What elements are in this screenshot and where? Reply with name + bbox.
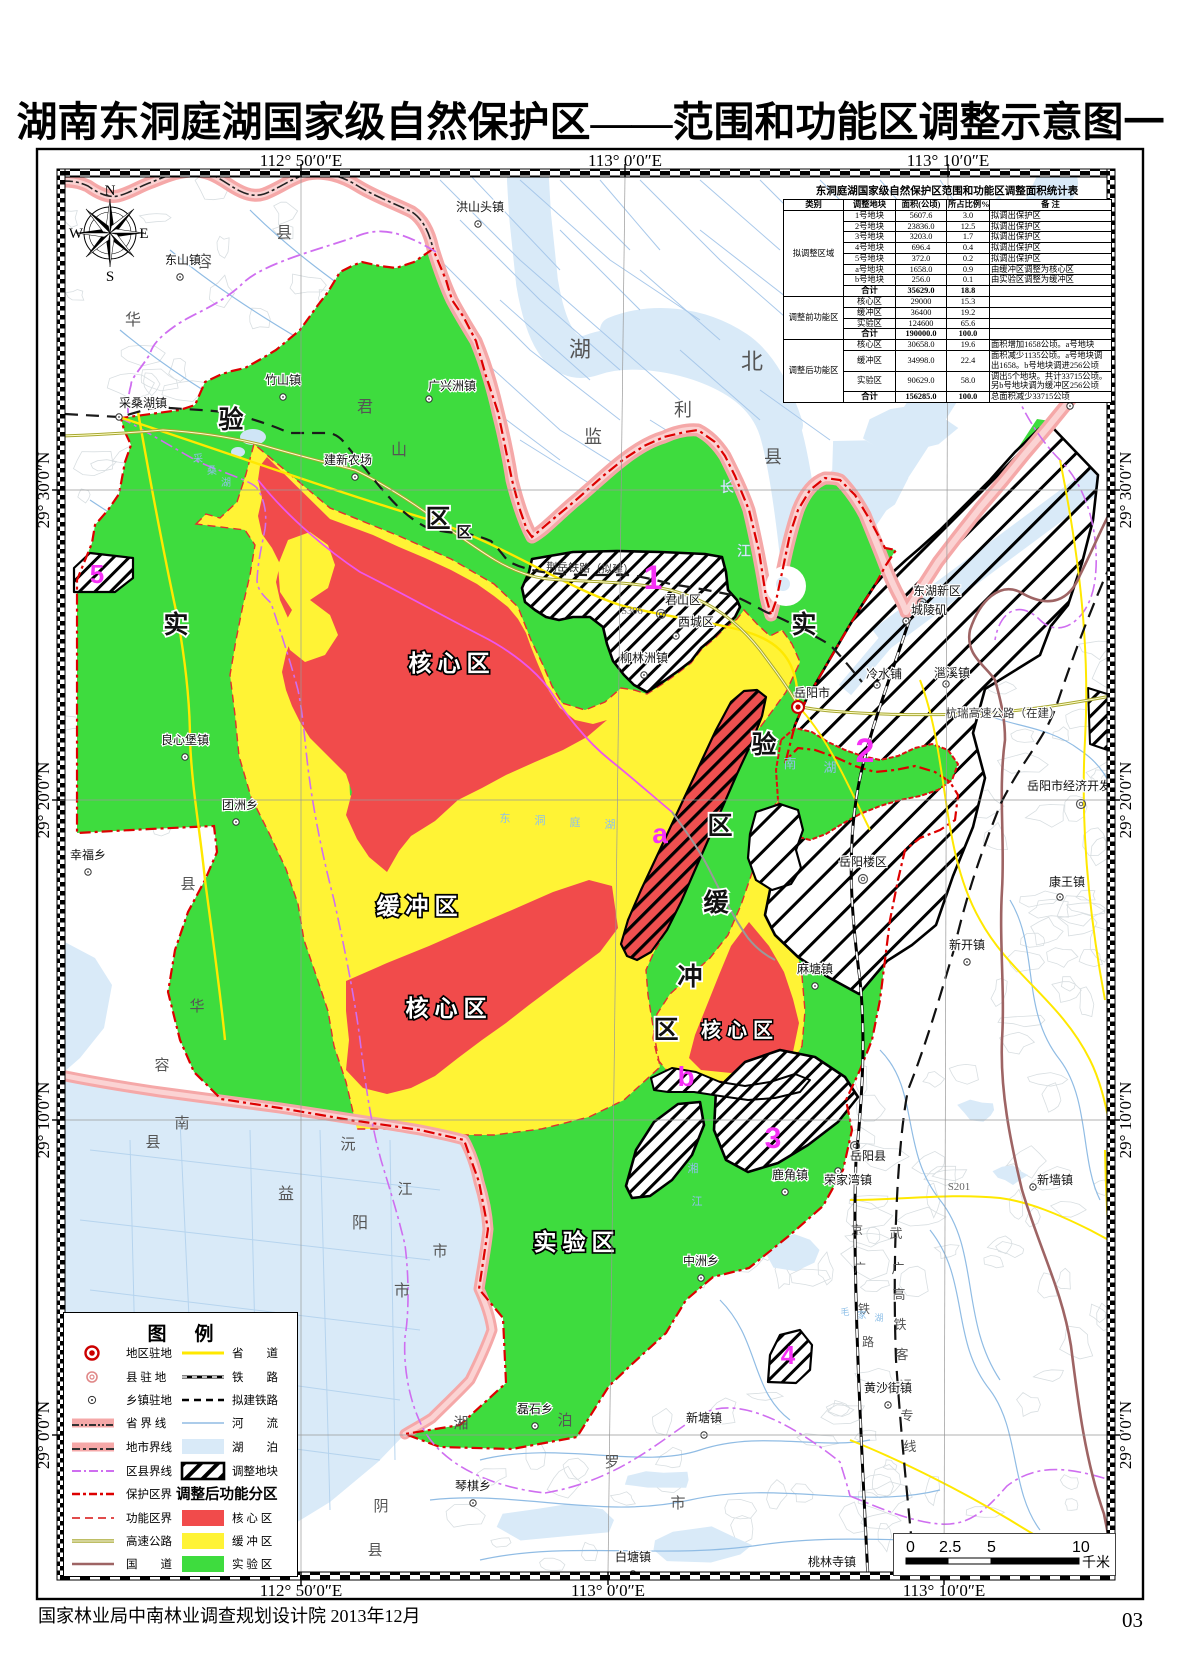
svg-text:省 道: 省 道	[232, 1346, 278, 1360]
svg-text:荣家湾镇: 荣家湾镇	[824, 1172, 872, 1187]
svg-text:君山区: 君山区	[665, 593, 701, 607]
svg-text:3: 3	[765, 1122, 782, 1155]
svg-text:保护区界: 保护区界	[126, 1487, 172, 1501]
svg-text:2.5: 2.5	[939, 1539, 961, 1556]
svg-text:铁: 铁	[893, 1317, 906, 1332]
svg-text:西城区: 西城区	[678, 615, 714, 629]
svg-text:岳阳楼区: 岳阳楼区	[839, 854, 887, 869]
svg-text:广: 广	[854, 1261, 866, 1275]
svg-text:华: 华	[189, 998, 204, 1015]
svg-text:柳林洲镇: 柳林洲镇	[620, 651, 668, 665]
svg-text:29° 30′0″N: 29° 30′0″N	[1116, 452, 1135, 529]
svg-text:市: 市	[670, 1495, 685, 1512]
svg-text:调整地块: 调整地块	[232, 1464, 278, 1478]
svg-text:实: 实	[791, 610, 816, 639]
svg-text:京: 京	[851, 1223, 863, 1237]
svg-text:白塘镇: 白塘镇	[615, 1549, 651, 1564]
svg-text:泊: 泊	[557, 1412, 572, 1429]
svg-text:湘: 湘	[453, 1415, 468, 1432]
svg-text:采桑湖镇: 采桑湖镇	[119, 395, 167, 410]
svg-text:利: 利	[674, 400, 692, 420]
svg-text:县: 县	[764, 447, 782, 467]
svg-text:市: 市	[394, 1282, 410, 1300]
svg-text:桑: 桑	[207, 465, 217, 477]
svg-text:29° 30′0″N: 29° 30′0″N	[34, 452, 53, 529]
svg-text:监: 监	[584, 427, 602, 447]
svg-text:河 流: 河 流	[232, 1416, 278, 1430]
svg-text:核心区: 核心区	[701, 1018, 779, 1042]
svg-text:实 验 区: 实 验 区	[232, 1557, 272, 1571]
svg-text:湘: 湘	[688, 1161, 699, 1175]
svg-text:铁 路: 铁 路	[232, 1370, 278, 1384]
svg-text:区: 区	[456, 524, 471, 541]
svg-text:阳: 阳	[352, 1214, 368, 1232]
svg-text:29° 0′0″N: 29° 0′0″N	[1116, 1401, 1135, 1469]
svg-text:实验区: 实验区	[534, 1229, 621, 1255]
svg-text:W: W	[69, 226, 84, 242]
svg-text:沅: 沅	[340, 1136, 355, 1153]
svg-text:113° 10′0″E: 113° 10′0″E	[907, 151, 990, 170]
svg-text:㴩溪镇: 㴩溪镇	[934, 666, 970, 680]
svg-text:湖: 湖	[569, 337, 591, 362]
svg-text:5: 5	[90, 559, 104, 589]
svg-text:S: S	[106, 269, 114, 285]
svg-text:麻塘镇: 麻塘镇	[797, 961, 833, 976]
svg-text:113° 0′0″E: 113° 0′0″E	[588, 151, 662, 170]
svg-text:广: 广	[891, 1261, 904, 1276]
svg-text:113° 10′0″E: 113° 10′0″E	[903, 1581, 986, 1600]
svg-text:广兴洲镇: 广兴洲镇	[428, 379, 476, 393]
svg-text:核 心 区: 核 心 区	[232, 1511, 272, 1525]
svg-text:缓 冲 区: 缓 冲 区	[232, 1534, 272, 1548]
svg-text:竹山镇: 竹山镇	[265, 373, 301, 387]
svg-text:29° 10′0″N: 29° 10′0″N	[34, 1082, 53, 1159]
svg-text:乡镇驻地: 乡镇驻地	[126, 1393, 172, 1407]
svg-text:验: 验	[218, 405, 243, 434]
svg-text:b: b	[677, 1061, 694, 1092]
svg-text:武: 武	[889, 1226, 902, 1241]
svg-text:长: 长	[720, 480, 734, 496]
svg-text:29° 20′0″N: 29° 20′0″N	[34, 762, 53, 839]
svg-text:调整后功能分区: 调整后功能分区	[176, 1485, 278, 1503]
svg-text:杭瑞高速公路（在建）: 杭瑞高速公路（在建）	[946, 706, 1061, 720]
svg-text:江: 江	[692, 1195, 703, 1208]
svg-text:拟建铁路: 拟建铁路	[232, 1393, 278, 1407]
svg-text:专: 专	[900, 1408, 913, 1423]
svg-text:县: 县	[367, 1543, 382, 1559]
svg-text:华: 华	[125, 311, 141, 329]
svg-text:高: 高	[892, 1287, 905, 1302]
svg-text:城陵矶: 城陵矶	[911, 603, 947, 617]
svg-text:庭: 庭	[570, 815, 581, 829]
svg-text:东: 东	[500, 812, 511, 825]
svg-text:2: 2	[856, 732, 875, 770]
svg-text:高速公路: 高速公路	[126, 1534, 172, 1548]
svg-text:岳阳市: 岳阳市	[794, 685, 830, 700]
svg-text:市: 市	[432, 1243, 447, 1260]
svg-text:鹿角镇: 鹿角镇	[772, 1167, 808, 1182]
svg-text:县: 县	[276, 225, 292, 242]
svg-text:区: 区	[707, 813, 732, 840]
svg-text:a: a	[652, 818, 668, 849]
svg-text:采: 采	[193, 453, 203, 465]
svg-text:地市界线: 地市界线	[126, 1440, 172, 1454]
svg-text:新开镇: 新开镇	[949, 937, 985, 952]
svg-text:缓冲区: 缓冲区	[377, 893, 464, 919]
svg-text:琴棋乡: 琴棋乡	[455, 1479, 491, 1493]
svg-text:君: 君	[357, 399, 373, 416]
svg-text:江: 江	[397, 1181, 412, 1198]
svg-text:验: 验	[751, 730, 776, 759]
svg-text:S201: S201	[948, 1181, 971, 1193]
svg-text:区: 区	[425, 506, 450, 533]
svg-text:洞: 洞	[535, 814, 546, 827]
svg-text:新墙镇: 新墙镇	[1037, 1172, 1073, 1187]
svg-text:磊石乡: 磊石乡	[517, 1402, 553, 1416]
svg-text:29° 20′0″N: 29° 20′0″N	[1116, 762, 1135, 839]
svg-text:良心堡镇: 良心堡镇	[161, 732, 209, 747]
svg-text:康王镇: 康王镇	[1049, 874, 1085, 889]
svg-text:黄沙街镇: 黄沙街镇	[864, 1381, 912, 1395]
svg-text:江: 江	[737, 544, 751, 560]
svg-text:县: 县	[180, 877, 195, 893]
svg-text:县 驻 地: 县 驻 地	[126, 1370, 167, 1384]
svg-text:湖: 湖	[823, 760, 836, 775]
svg-text:县: 县	[145, 1135, 160, 1151]
svg-text:容: 容	[154, 1057, 169, 1074]
svg-text:29° 0′0″N: 29° 0′0″N	[34, 1401, 53, 1469]
svg-text:客: 客	[895, 1347, 908, 1362]
svg-text:南: 南	[174, 1115, 189, 1132]
svg-text:北: 北	[741, 349, 763, 374]
svg-text:缓: 缓	[703, 888, 729, 917]
svg-text:南: 南	[783, 756, 796, 771]
svg-text:桃林寺镇: 桃林寺镇	[808, 1554, 856, 1569]
svg-text:阴: 阴	[373, 1498, 388, 1515]
svg-text:东湖新区: 东湖新区	[913, 583, 961, 598]
svg-text:省 界 线: 省 界 线	[126, 1416, 167, 1430]
svg-text:核心区: 核心区	[409, 650, 496, 676]
svg-text:冷水铺: 冷水铺	[866, 667, 902, 681]
svg-text:29° 10′0″N: 29° 10′0″N	[1116, 1082, 1135, 1159]
svg-text:10: 10	[1072, 1539, 1090, 1556]
svg-text:中洲乡: 中洲乡	[683, 1253, 719, 1268]
svg-text:实: 实	[163, 610, 188, 639]
svg-text:家: 家	[857, 1309, 866, 1320]
svg-text:湖: 湖	[605, 818, 616, 831]
svg-text:千米: 千米	[1082, 1555, 1110, 1571]
svg-text:功能区界: 功能区界	[126, 1511, 172, 1525]
svg-text:建新农场: 建新农场	[324, 452, 372, 467]
svg-text:湖: 湖	[874, 1313, 883, 1323]
svg-text:山: 山	[391, 441, 407, 459]
svg-text:岳阳县: 岳阳县	[850, 1149, 886, 1163]
svg-text:N: N	[105, 183, 116, 199]
svg-text:益: 益	[278, 1185, 294, 1203]
svg-text:东山镇: 东山镇	[165, 253, 201, 267]
svg-text:4: 4	[781, 1340, 796, 1370]
svg-text:0: 0	[906, 1539, 915, 1556]
svg-text:112° 50′0″E: 112° 50′0″E	[260, 151, 343, 170]
svg-text:新塘镇: 新塘镇	[686, 1410, 722, 1425]
svg-text:S306: S306	[621, 606, 643, 617]
svg-text:1: 1	[644, 559, 663, 597]
svg-text:5: 5	[987, 1539, 996, 1556]
svg-text:区: 区	[653, 1017, 678, 1044]
svg-text:E: E	[139, 226, 148, 242]
svg-text:幸福乡: 幸福乡	[70, 847, 106, 862]
svg-text:国 道: 国 道	[126, 1557, 172, 1571]
svg-text:冲: 冲	[677, 963, 702, 991]
svg-text:核心区: 核心区	[406, 995, 493, 1021]
svg-text:路: 路	[862, 1334, 874, 1349]
svg-text:罗: 罗	[604, 1455, 619, 1471]
svg-text:地区驻地: 地区驻地	[126, 1346, 172, 1360]
svg-text:113° 0′0″E: 113° 0′0″E	[571, 1581, 645, 1600]
svg-text:湖 泊: 湖 泊	[232, 1440, 278, 1454]
svg-text:湖: 湖	[221, 477, 231, 489]
svg-text:112° 50′0″E: 112° 50′0″E	[260, 1581, 343, 1600]
svg-text:毛: 毛	[840, 1306, 849, 1317]
svg-text:洪山头镇: 洪山头镇	[456, 200, 504, 214]
svg-text:区县界线: 区县界线	[126, 1464, 172, 1478]
svg-text:线: 线	[903, 1439, 916, 1454]
